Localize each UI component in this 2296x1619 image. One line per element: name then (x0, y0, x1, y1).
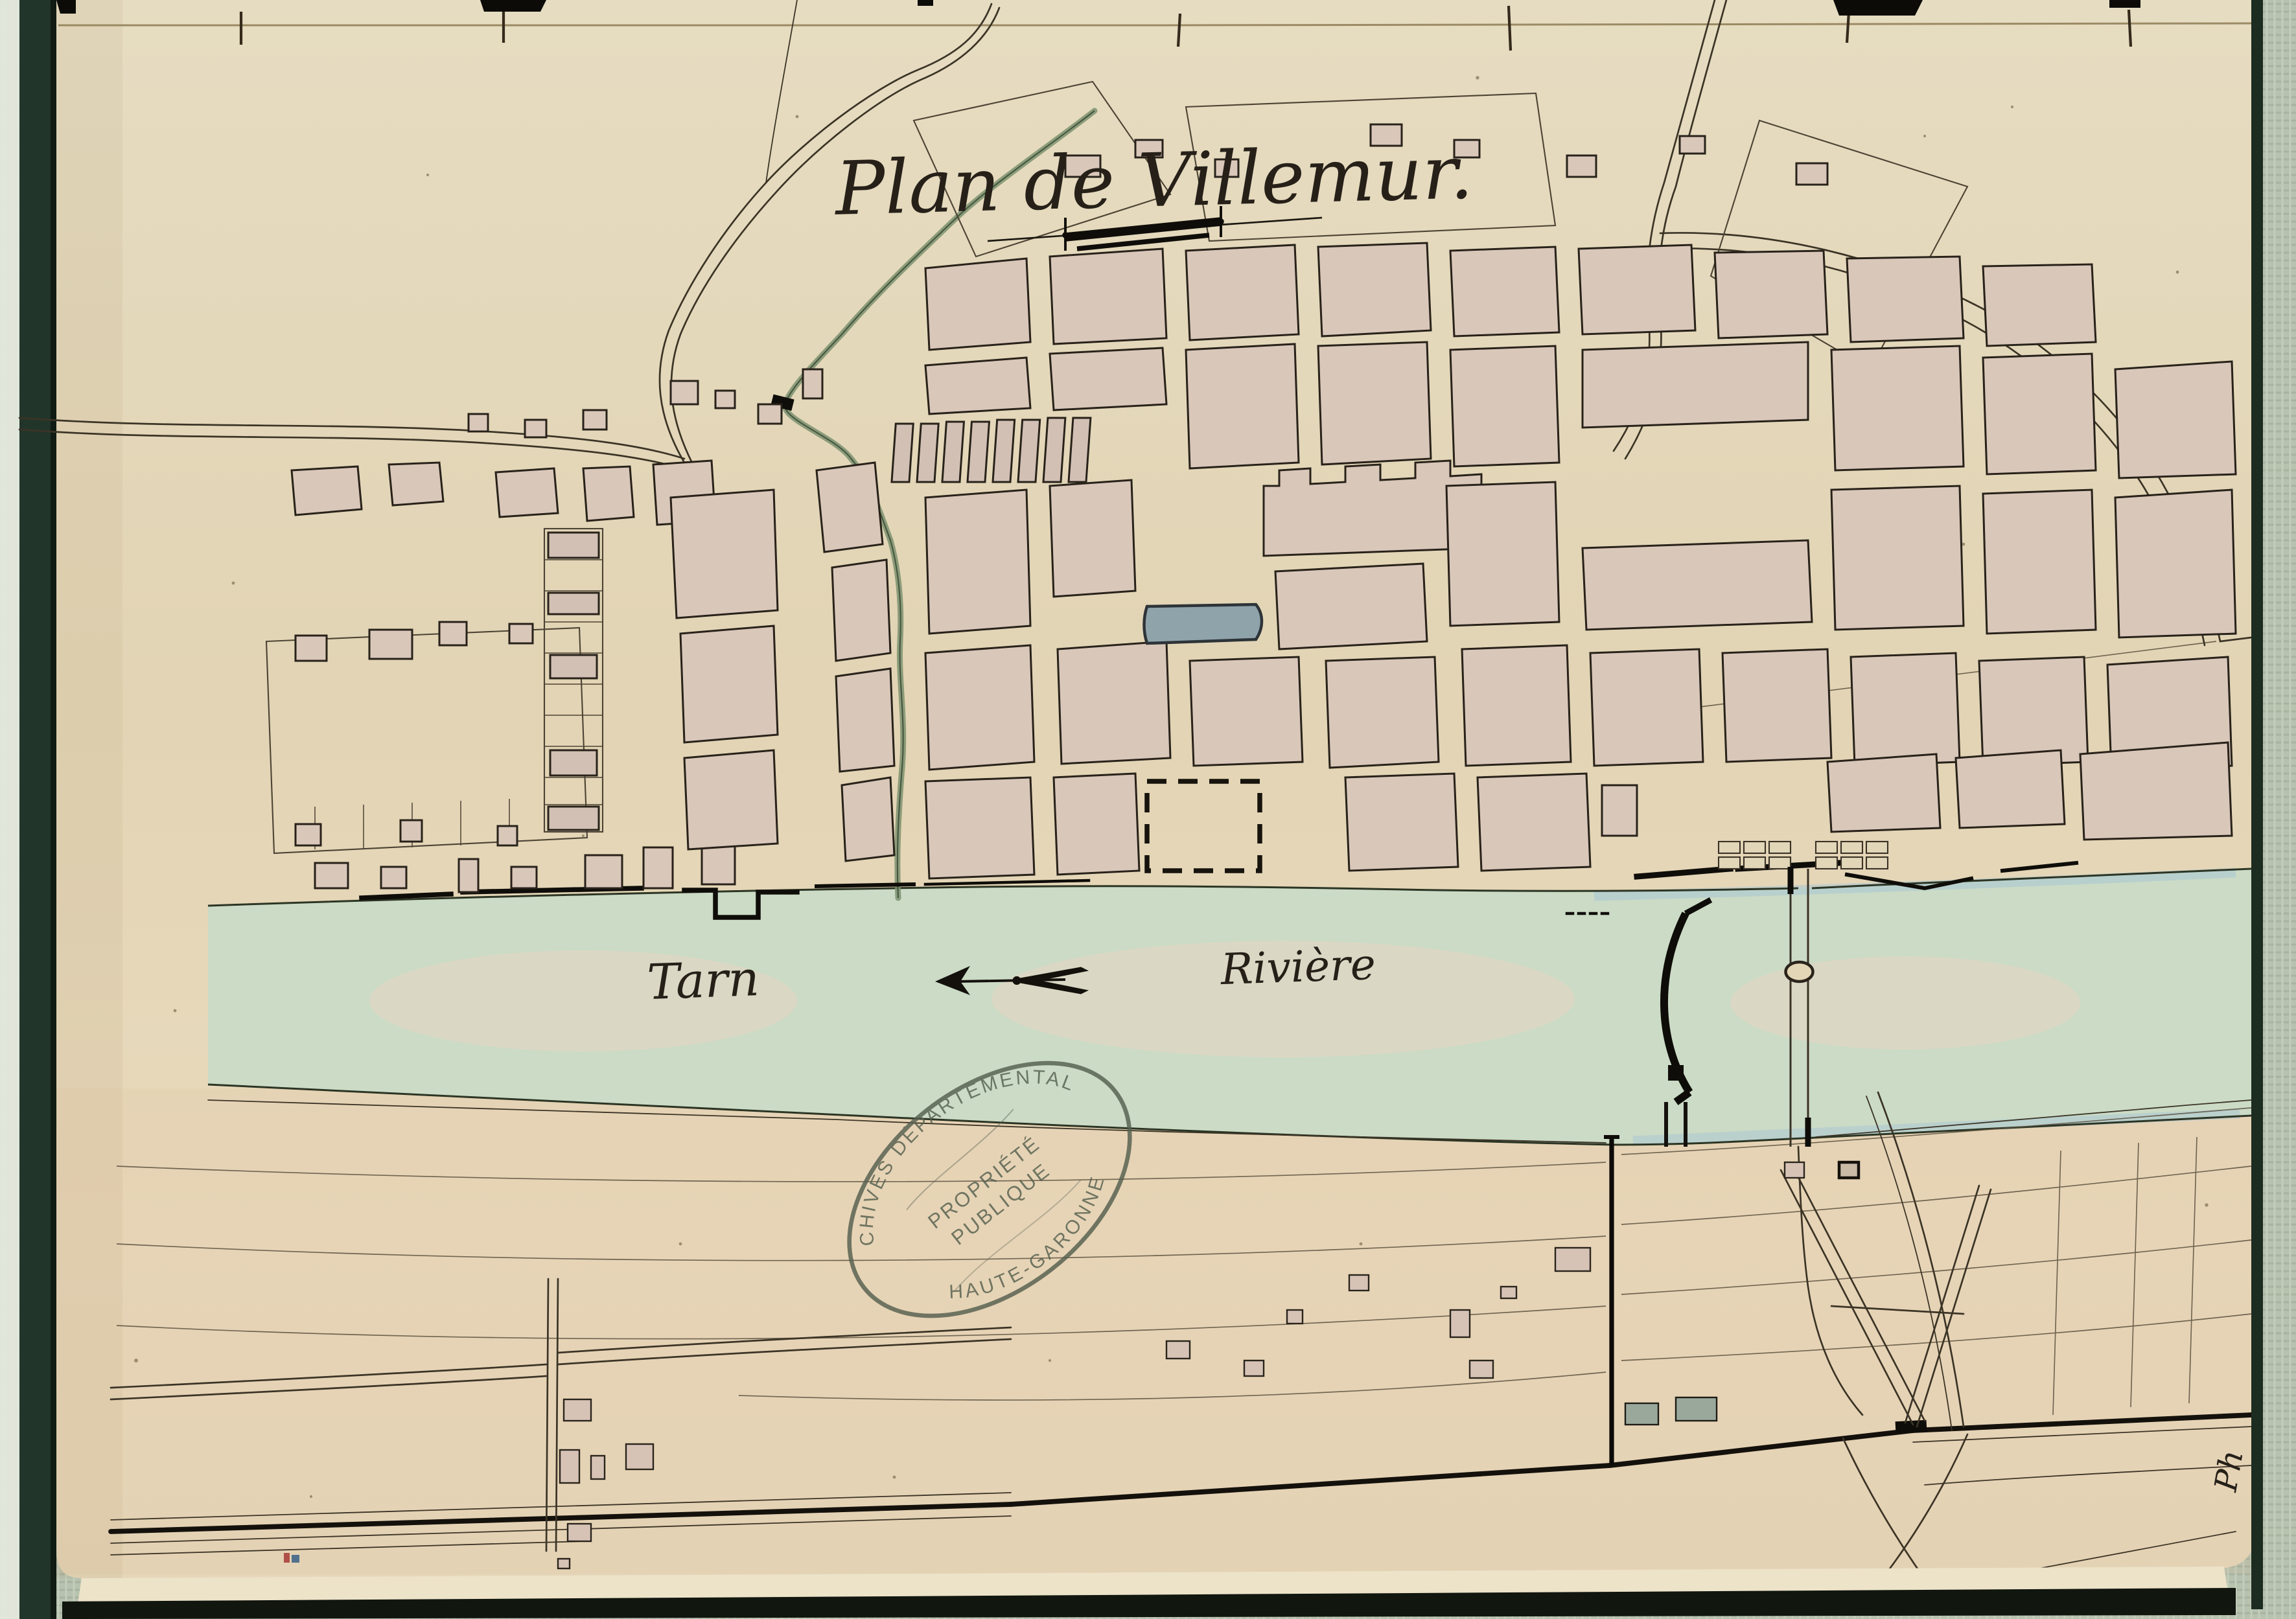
paper-speckle (2011, 106, 2013, 108)
building-block (1567, 155, 1596, 177)
outlying-building (1287, 1310, 1303, 1324)
building-block (1446, 482, 1559, 626)
outlying-building (626, 1444, 653, 1469)
top-edge-mark (1833, 0, 1923, 16)
stitch-mark (1847, 12, 1849, 43)
building-block (917, 424, 938, 482)
building-block (1450, 247, 1559, 336)
page-tint-left (56, 0, 122, 1578)
market-stall (1744, 842, 1765, 853)
building-block (525, 420, 546, 437)
paper-speckle (796, 115, 799, 119)
paper-speckle (1049, 1359, 1051, 1362)
building-block (498, 826, 517, 845)
building-block (1190, 657, 1303, 766)
building-block (1979, 657, 2088, 766)
building-block (583, 410, 607, 430)
outlying-building (568, 1524, 591, 1541)
building-block (1478, 774, 1590, 871)
paper-speckle (426, 174, 429, 176)
outlying-building (1349, 1275, 1369, 1291)
building-block (381, 867, 406, 888)
building-block (1318, 243, 1431, 336)
building-block (715, 391, 735, 408)
building-block (1847, 257, 1964, 342)
building-block (1345, 774, 1458, 871)
outlying-building (558, 1559, 570, 1568)
market-stall (1744, 857, 1765, 869)
building-block (993, 420, 1015, 482)
tarn-label: Tarn (646, 950, 760, 1011)
top-edge-mark (2109, 0, 2140, 8)
building-block (1050, 249, 1166, 344)
market-stall (1769, 857, 1791, 869)
building-block (1831, 346, 1964, 470)
outlying-building (1166, 1341, 1190, 1359)
building-block (315, 863, 348, 888)
building-block (292, 466, 362, 515)
building-block (680, 626, 778, 742)
building-block (296, 636, 327, 661)
building-block (469, 414, 488, 431)
building-block (1680, 136, 1705, 154)
building-block (1956, 750, 2065, 828)
stitch-mark (2129, 10, 2131, 47)
map-title: Plan de Villemur. (833, 129, 1474, 232)
building-block (1186, 344, 1299, 468)
building-block (585, 855, 622, 888)
market-stall (1816, 857, 1837, 869)
outlying-building (1244, 1361, 1264, 1376)
teal-building (1625, 1403, 1658, 1425)
building-block (439, 622, 467, 645)
building-block (1318, 342, 1431, 465)
market-stall (1719, 842, 1740, 853)
building-block (1050, 480, 1135, 597)
map-scan-svg: Plan de Villemur. Tarn Rivière ARCHIVES … (0, 0, 2296, 1619)
river-sand-patch (1730, 956, 2080, 1050)
building-block (925, 645, 1034, 770)
quay-wall (817, 884, 914, 886)
outlying-building (1785, 1162, 1804, 1178)
building-block (1058, 641, 1170, 764)
building-block (1715, 251, 1827, 338)
building-block (1069, 418, 1091, 482)
building-block (2080, 742, 2232, 840)
outlying-building (1555, 1248, 1590, 1271)
outlying-building (560, 1450, 579, 1483)
building-block (548, 533, 599, 558)
screenshot-root: { "document": { "title": "Plan de Villem… (0, 0, 2296, 1619)
building-block (1043, 418, 1065, 482)
market-stall (1841, 857, 1862, 869)
building-block (459, 859, 478, 892)
building-block (1827, 754, 1940, 832)
outlying-building (1470, 1361, 1493, 1378)
building-block (1462, 645, 1571, 766)
paper-speckle (679, 1243, 682, 1246)
building-block (2115, 490, 2236, 637)
building-block (400, 820, 422, 842)
ph-corner-mark: Ph (2207, 1447, 2250, 1495)
building-block (1590, 649, 1703, 766)
building-block (369, 630, 412, 659)
building-block (1275, 564, 1427, 649)
building-block (2115, 362, 2236, 478)
paper-speckle (1962, 543, 1966, 546)
building-block (836, 669, 894, 772)
market-hall-blue-building (1144, 604, 1262, 643)
paper-speckle (2205, 1203, 2208, 1206)
building-block (389, 463, 443, 505)
building-block (832, 560, 890, 661)
outlying-building (591, 1456, 605, 1479)
red-accent-mark (284, 1553, 290, 1563)
building-block (1983, 490, 2096, 634)
paper-speckle (1476, 76, 1479, 79)
market-stall (1719, 857, 1740, 869)
building-block (758, 404, 782, 424)
binding-shadow (51, 0, 56, 1619)
building-block (1851, 653, 1960, 766)
top-edge-mark (480, 0, 546, 12)
building-block (925, 258, 1030, 350)
building-block (684, 750, 778, 849)
page-tint-lower (56, 1088, 2255, 1574)
building-block (925, 358, 1030, 414)
building-block (1186, 245, 1299, 340)
outlying-building (564, 1399, 591, 1421)
building-block (550, 655, 597, 678)
stitch-mark (1509, 6, 1511, 51)
paper-speckle (2176, 271, 2179, 274)
page-right-edge-shadow (2251, 0, 2263, 1609)
bridge-pier (1786, 962, 1813, 982)
building-block (1579, 245, 1695, 334)
building-block (1796, 163, 1827, 185)
building-block (925, 777, 1034, 878)
building-block (925, 490, 1030, 634)
teal-building (1676, 1397, 1717, 1421)
building-block (892, 424, 913, 482)
building-block (1722, 649, 1831, 762)
building-block (1602, 785, 1637, 836)
outlying-building (1450, 1310, 1470, 1337)
paper-speckle (1360, 1243, 1363, 1246)
building-block (1054, 774, 1139, 875)
building-block (842, 777, 894, 861)
paper-speckle (232, 582, 235, 585)
building-block (296, 824, 321, 845)
market-stall (1769, 842, 1791, 853)
market-stall (1866, 842, 1888, 853)
building-block (1583, 540, 1812, 630)
scanned-map-page: Plan de Villemur. Tarn Rivière ARCHIVES … (0, 0, 2296, 1619)
building-block (1831, 486, 1964, 630)
building-block (1983, 264, 2096, 346)
building-block (550, 750, 597, 775)
outlying-building (1501, 1287, 1516, 1298)
building-block (583, 466, 634, 521)
building-block (817, 463, 883, 552)
building-block (496, 468, 558, 517)
market-stall (1866, 857, 1888, 869)
top-edge-mark (918, 0, 933, 6)
building-block (671, 490, 778, 618)
paper-speckle (582, 834, 585, 837)
market-stall (1841, 842, 1862, 853)
stitch-mark (1178, 14, 1180, 47)
building-block (1050, 348, 1166, 410)
building-block (644, 847, 673, 888)
building-block (509, 624, 533, 643)
blue-accent-mark (292, 1555, 299, 1563)
paper-speckle (174, 1009, 177, 1013)
building-block (1018, 420, 1040, 482)
building-block (1983, 354, 2096, 474)
building-block (803, 369, 822, 398)
building-block (968, 422, 990, 482)
building-block (1583, 342, 1808, 428)
paper-speckle (1923, 135, 1926, 137)
building-block (511, 867, 537, 888)
building-block (1326, 657, 1439, 768)
building-block (671, 381, 698, 404)
paper-speckle (893, 1476, 896, 1479)
paper-speckle (310, 1495, 312, 1498)
market-stall (1816, 842, 1837, 853)
paper-speckle (134, 1359, 138, 1362)
riviere-label: Rivière (1220, 939, 1376, 994)
bridge-toll-house (1839, 1162, 1859, 1178)
building-block (942, 422, 964, 482)
building-block (548, 593, 599, 614)
building-block (548, 807, 599, 830)
building-block (1450, 346, 1559, 466)
